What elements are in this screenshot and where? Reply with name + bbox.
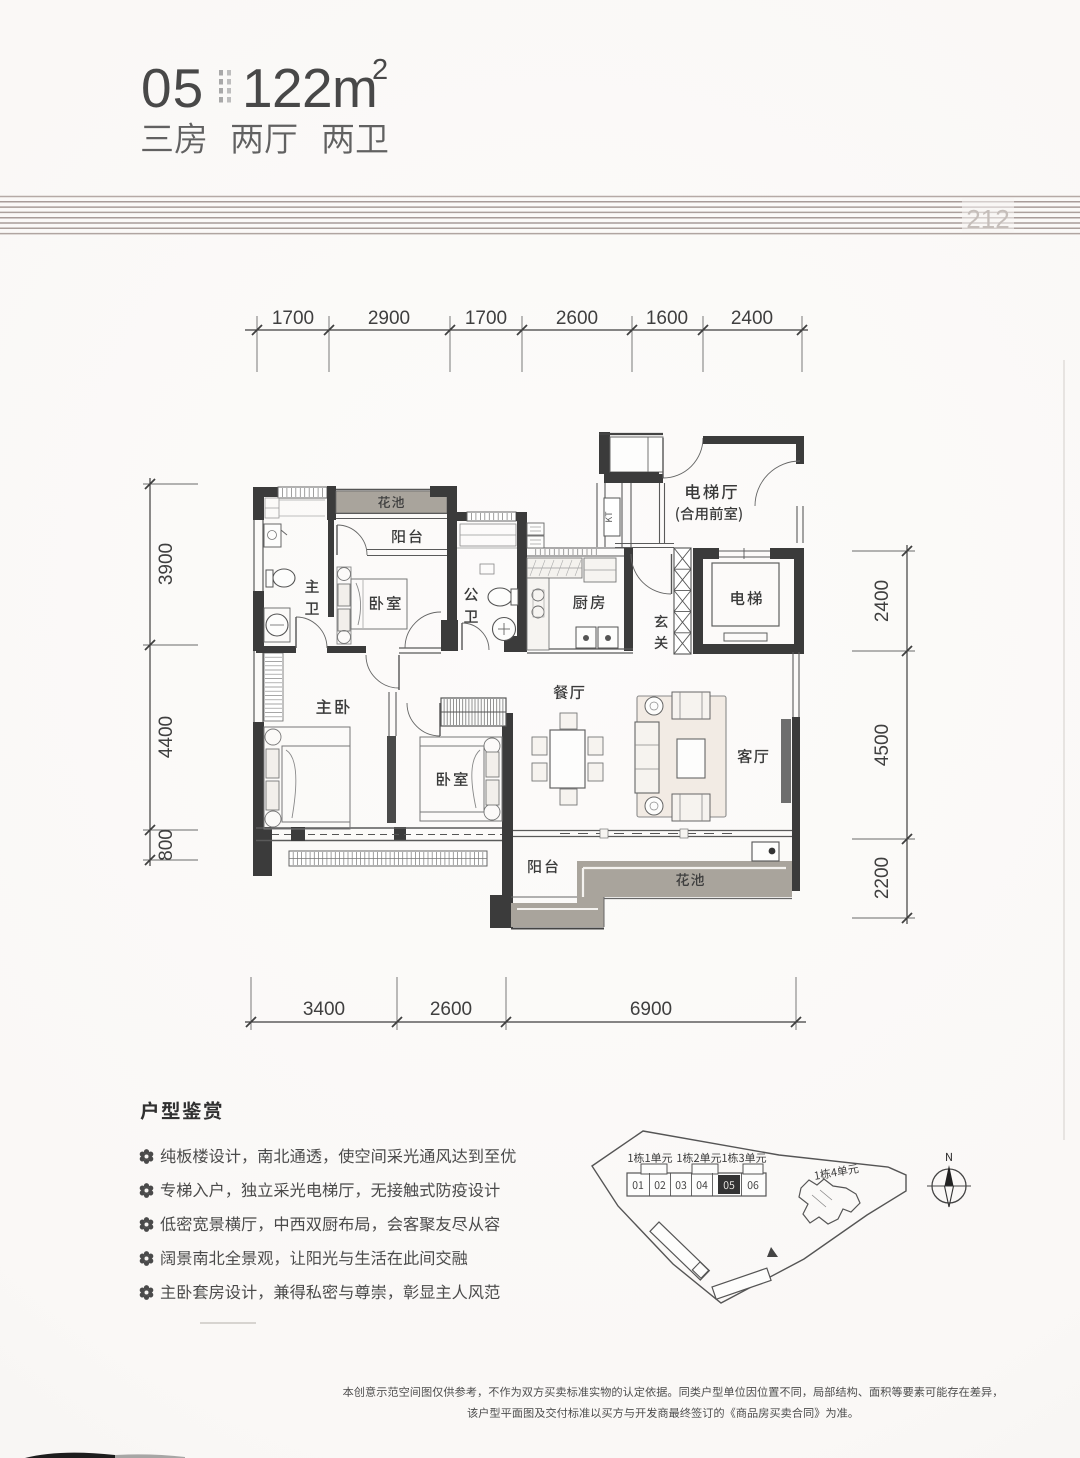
svg-text:800: 800: [156, 829, 177, 861]
svg-text:1700: 1700: [272, 308, 314, 329]
svg-text:2900: 2900: [368, 308, 410, 329]
svg-text:2200: 2200: [872, 857, 893, 899]
svg-text:05: 05: [141, 57, 204, 119]
svg-text:2: 2: [372, 54, 388, 86]
svg-text:4400: 4400: [156, 716, 177, 758]
svg-text:2400: 2400: [872, 580, 893, 622]
svg-text:2600: 2600: [430, 999, 472, 1020]
svg-text:3400: 3400: [303, 999, 345, 1020]
svg-text:2400: 2400: [731, 308, 773, 329]
svg-text:4500: 4500: [872, 724, 893, 766]
svg-text:122m: 122m: [242, 57, 377, 119]
svg-text:2600: 2600: [556, 308, 598, 329]
svg-text:1700: 1700: [465, 308, 507, 329]
svg-text:3900: 3900: [156, 543, 177, 585]
svg-text:1600: 1600: [646, 308, 688, 329]
svg-text:212: 212: [966, 204, 1009, 234]
svg-text:6900: 6900: [630, 999, 672, 1020]
